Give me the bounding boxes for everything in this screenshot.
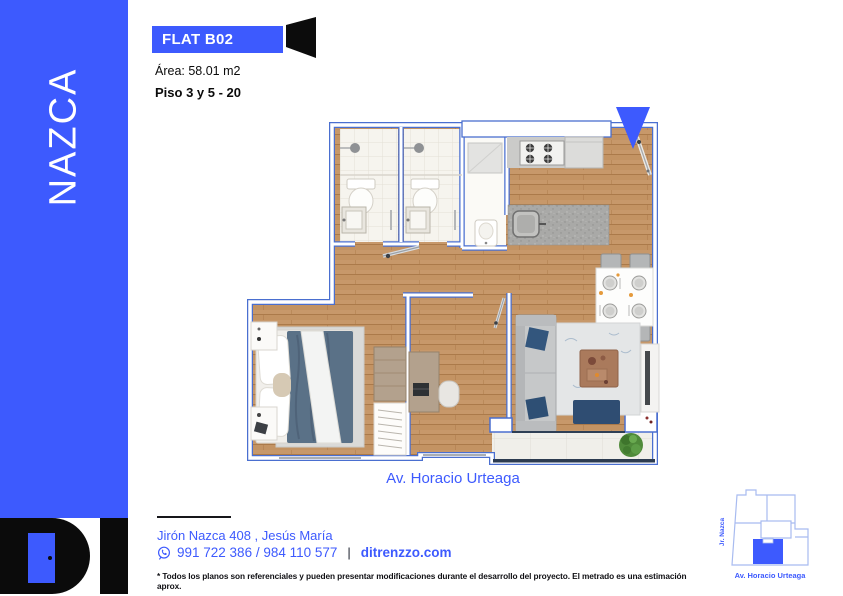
letter-i [100,518,128,594]
unit-chip-label: FLAT B02 [162,31,233,48]
minimap-unit-notch [763,539,773,543]
desk-chair [439,381,459,407]
phone-numbers: 991 722 386 / 984 110 577 [177,545,337,560]
ottoman [573,400,620,424]
disclaimer-text: * Todos los planos son referenciales y p… [157,571,697,591]
brand-name: NAZCA [43,68,86,207]
floor-plan-svg [243,115,663,467]
stove-icon [520,141,564,165]
unit-chip: FLAT B02 [152,26,283,53]
footer-divider [157,516,231,518]
coffee-table [580,350,618,387]
nightstand [251,322,277,350]
tv-icon [645,351,650,405]
sofa [516,315,556,432]
dresser [374,347,406,401]
location-minimap: Jr. Nazca Av. Horacio Urteaga [705,485,835,590]
minimap-street-front: Av. Horacio Urteaga [735,571,807,580]
plant-icon [619,433,643,457]
area-label: Área: 58.01 m2 [155,64,240,78]
door-knob-icon [48,556,52,560]
tv-console [641,344,659,424]
letter-d [0,518,90,594]
floor-label: Piso 3 y 5 - 20 [155,85,241,100]
minimap-street-side: Jr. Nazca [719,518,726,547]
address-text: Jirón Nazca 408 , Jesús María [157,528,333,543]
living-room [516,315,659,432]
kitchen-island [508,205,609,245]
di-logo [0,518,128,596]
desk [409,352,439,412]
website-link[interactable]: ditrenzzo.com [361,545,452,560]
nightstand [251,407,277,440]
street-caption: Av. Horacio Urteaga [243,470,663,487]
balcony-wall-stub-left [490,418,512,432]
separator: | [347,545,350,560]
whatsapp-icon [157,546,171,560]
pillow-icon [525,396,548,419]
door-flag-icon [286,14,316,59]
contact-row: 991 722 386 / 984 110 577 | ditrenzzo.co… [157,545,452,560]
floor-plan [243,115,663,467]
pillow-icon [525,327,549,351]
brand-sidebar: NAZCA [0,0,128,518]
closet [374,403,406,455]
pillow-icon [273,373,291,397]
dining-table [596,268,653,326]
flyer-page: NAZCA FLAT B02 Área: 58.01 m2 Piso 3 y 5… [0,0,843,596]
railing [493,459,655,463]
kitchen-top-wall [462,121,611,137]
